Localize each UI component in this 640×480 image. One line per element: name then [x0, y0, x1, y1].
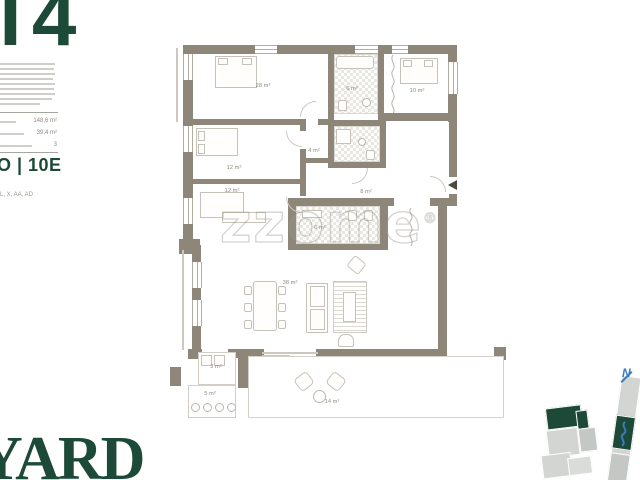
- wall: [170, 367, 181, 386]
- row-value: 39,4 m²: [37, 130, 57, 136]
- wall: [288, 198, 394, 206]
- row-label-bar: [0, 121, 16, 123]
- wall: [378, 51, 384, 113]
- wall: [238, 349, 248, 388]
- planter: [203, 403, 212, 412]
- wall: [438, 198, 447, 358]
- pillow: [198, 144, 205, 154]
- balcony-rail: [176, 48, 178, 122]
- window: [355, 45, 378, 54]
- room-area-label: 5 m²: [204, 390, 216, 396]
- window: [448, 62, 458, 94]
- wall: [449, 113, 457, 177]
- sofa-cushion: [310, 286, 325, 307]
- bathtub: [336, 56, 374, 69]
- window: [192, 262, 202, 288]
- room-area-label: 12 m²: [227, 164, 242, 170]
- toilet: [338, 100, 347, 111]
- room-area-label: 6 m²: [346, 85, 358, 91]
- planter: [215, 403, 224, 412]
- row-value: 3: [54, 142, 57, 148]
- window: [183, 54, 193, 80]
- sliding-door: [262, 352, 318, 354]
- pillow: [424, 60, 433, 67]
- room-area-label: 10 m²: [410, 87, 425, 93]
- wall: [378, 113, 457, 121]
- brand-mark-icon: [612, 417, 634, 451]
- table-row: 3: [0, 142, 58, 151]
- chair: [278, 320, 286, 329]
- armchair: [346, 255, 366, 275]
- finishes-codes: L, X, AA, AD: [0, 192, 33, 198]
- pillow: [242, 58, 252, 65]
- wall: [192, 179, 300, 184]
- planter: [191, 403, 200, 412]
- wall: [380, 119, 386, 168]
- row-label-bar: [0, 145, 32, 147]
- bidet: [364, 210, 373, 221]
- wardrobe-wave: [388, 55, 398, 113]
- room-area-label: 14 m²: [325, 398, 340, 404]
- building-block: [578, 427, 599, 453]
- room-area-label: 4 m²: [308, 147, 320, 153]
- chair: [244, 320, 252, 329]
- door-arc: [430, 176, 446, 192]
- wall: [318, 119, 332, 125]
- wall: [300, 149, 306, 196]
- chair: [244, 303, 252, 312]
- planter: [227, 403, 236, 412]
- building-block: [606, 452, 630, 480]
- window: [192, 300, 202, 326]
- floorplan-page: T4 148,6 m² 39,4 m² 3 O | 10E L, X, AA, …: [0, 0, 640, 480]
- pillow: [198, 131, 205, 141]
- door-arc: [286, 131, 302, 147]
- terrace: [248, 356, 504, 418]
- room-area-label: 6 m²: [314, 224, 326, 230]
- room-area-label: 12 m²: [225, 187, 240, 193]
- room-area-label: 3 m²: [210, 363, 222, 369]
- room-area-label: 38 m²: [283, 279, 298, 285]
- unit-type-title: T4: [0, 0, 73, 58]
- window: [392, 45, 408, 54]
- table-row: 39,4 m²: [0, 130, 58, 139]
- table-row: 148,6 m²: [0, 118, 58, 127]
- highlighted-building-block: [611, 415, 636, 451]
- wall: [183, 45, 457, 54]
- pillow: [403, 60, 412, 67]
- wall: [288, 244, 388, 250]
- armchair: [338, 334, 354, 347]
- shower: [336, 129, 351, 144]
- window: [183, 126, 193, 152]
- pillow: [218, 58, 228, 65]
- room-area-label: 8 m²: [360, 188, 372, 194]
- wall: [300, 119, 306, 131]
- unit-code: O | 10E: [0, 155, 62, 176]
- wall: [192, 119, 302, 125]
- dining-table: [253, 281, 277, 331]
- divider: [0, 152, 58, 153]
- divider: [0, 112, 58, 113]
- wall: [380, 198, 388, 250]
- chair: [278, 286, 286, 295]
- wall: [300, 158, 334, 163]
- dresser: [222, 212, 266, 223]
- door-arc: [352, 168, 368, 184]
- row-value: 148,6 m²: [33, 118, 57, 124]
- coffee-table: [343, 292, 356, 322]
- curtain-wave: [406, 208, 416, 246]
- window: [183, 198, 193, 224]
- toilet: [366, 150, 375, 160]
- row-label-bar: [0, 133, 24, 135]
- sink: [362, 98, 371, 107]
- sink: [358, 138, 366, 146]
- chair: [278, 303, 286, 312]
- entry-arrow-icon: [448, 180, 457, 190]
- chair: [244, 286, 252, 295]
- window: [255, 45, 277, 54]
- north-compass: N: [622, 366, 631, 380]
- sofa-cushion: [310, 309, 325, 330]
- toilet: [348, 210, 357, 221]
- building-block: [567, 455, 593, 476]
- vanity: [302, 210, 322, 218]
- yard-logo: YARD: [0, 428, 143, 480]
- door-arc: [300, 101, 316, 117]
- room-area-label: 28 m²: [256, 82, 271, 88]
- balcony-rail: [182, 250, 184, 350]
